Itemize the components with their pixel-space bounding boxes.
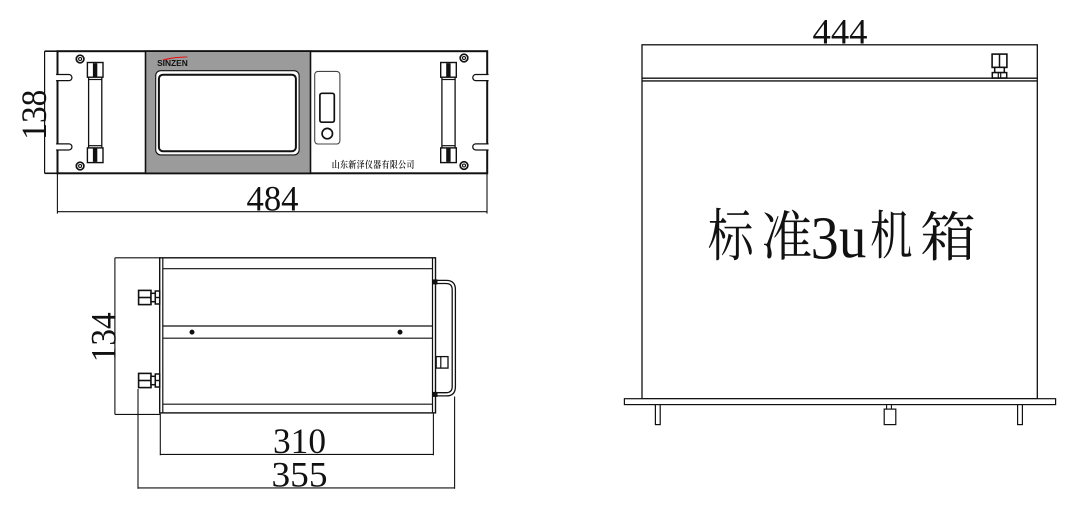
svg-text:SINZEN: SINZEN xyxy=(157,58,188,68)
svg-text:484: 484 xyxy=(247,178,299,218)
svg-text:138: 138 xyxy=(14,90,54,140)
svg-text:355: 355 xyxy=(272,455,328,495)
svg-text:134: 134 xyxy=(84,312,124,362)
